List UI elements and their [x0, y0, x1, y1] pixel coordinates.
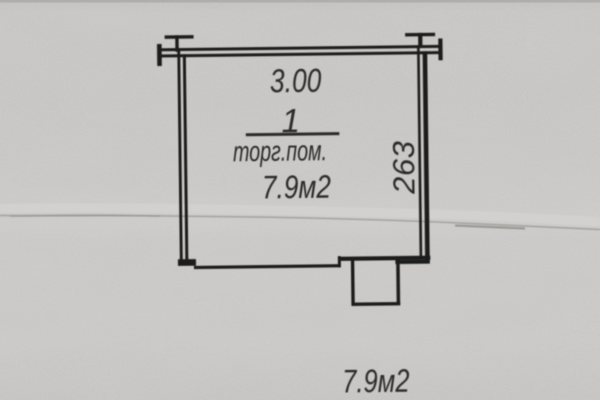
svg-text:торг.пом.: торг.пом. — [233, 136, 327, 169]
svg-text:7.9м2: 7.9м2 — [262, 170, 331, 206]
svg-text:7.9м2: 7.9м2 — [342, 364, 410, 400]
svg-text:263: 263 — [386, 140, 422, 195]
svg-text:3.00: 3.00 — [270, 63, 322, 100]
